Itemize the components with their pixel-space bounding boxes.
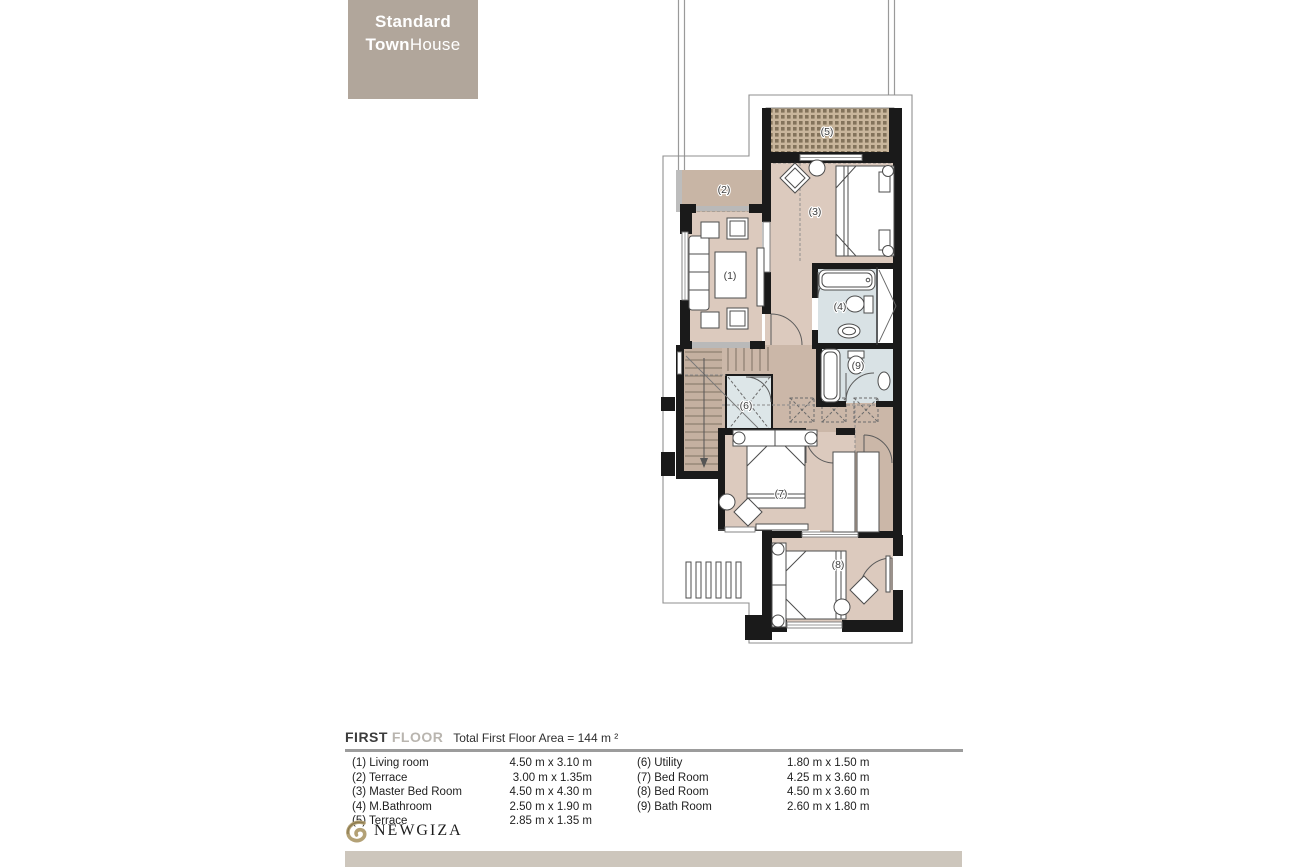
- legend-row: (9) Bath Room2.60 m x 1.80 m: [637, 800, 882, 815]
- room-label-3: (3): [809, 206, 822, 218]
- newgiza-logo-text: NEWGIZA: [374, 822, 463, 840]
- legend-floor-word1: FIRST: [345, 729, 388, 745]
- legend-divider: [345, 749, 963, 752]
- newgiza-logo-icon: [345, 819, 369, 843]
- room-name: (8) Bed Room: [637, 785, 787, 800]
- title-line2-light: House: [410, 35, 461, 54]
- room-dims: 2.60 m x 1.80 m: [787, 800, 882, 815]
- legend-row: (2) Terrace3.00 m x 1.35m: [352, 771, 592, 786]
- room-name: (7) Bed Room: [637, 771, 787, 786]
- room-name: (3) Master Bed Room: [352, 785, 507, 800]
- room-dims: 4.25 m x 3.60 m: [787, 771, 882, 786]
- pergola-slats: [686, 562, 741, 598]
- room-dims: 2.85 m x 1.35 m: [507, 814, 592, 829]
- room-dims: 4.50 m x 3.60 m: [787, 785, 882, 800]
- room-dims: 4.50 m x 3.10 m: [507, 756, 592, 771]
- room-name: (1) Living room: [352, 756, 507, 771]
- closet-7b: [857, 452, 879, 532]
- room-name: (2) Terrace: [352, 771, 507, 786]
- sofa: [689, 236, 709, 310]
- room-name: (6) Utility: [637, 756, 787, 771]
- floor-plan: (1) (2) (3) (4) (5) (6) (7) (8) (9): [630, 0, 930, 665]
- legend-row: (6) Utility1.80 m x 1.50 m: [637, 756, 882, 771]
- room-label-6: (6): [740, 400, 753, 412]
- room-dims: 4.50 m x 4.30 m: [507, 785, 592, 800]
- title-line1: Standard: [375, 12, 451, 31]
- legend-row: (4) M.Bathroom2.50 m x 1.90 m: [352, 800, 592, 815]
- toilet-4: [846, 296, 864, 312]
- legend-row: (8) Bed Room4.50 m x 3.60 m: [637, 785, 882, 800]
- room-label-2: (2): [718, 184, 731, 196]
- title-line2-bold: Town: [366, 35, 410, 54]
- bench-7: [756, 524, 808, 530]
- sink-9: [878, 372, 890, 390]
- legend-heading: FIRST FLOOR Total First Floor Area = 144…: [345, 729, 963, 745]
- developer-logo: NEWGIZA: [345, 819, 463, 843]
- legend-total-area: Total First Floor Area = 144 m ²: [453, 731, 618, 745]
- room-dims: 1.80 m x 1.50 m: [787, 756, 882, 771]
- legend-row: (7) Bed Room4.25 m x 3.60 m: [637, 771, 882, 786]
- side-table-7: [719, 494, 735, 510]
- legend-row: (1) Living room4.50 m x 3.10 m: [352, 756, 592, 771]
- wall-shelf-8: [886, 556, 890, 592]
- room-dims: 2.50 m x 1.90 m: [507, 800, 592, 815]
- tv-unit: [757, 248, 764, 306]
- room-label-1: (1): [724, 270, 737, 282]
- room-label-4: (4): [834, 301, 847, 313]
- hall-floor: [765, 267, 812, 347]
- room-name: (4) M.Bathroom: [352, 800, 507, 815]
- plan-type-title-box: Standard TownHouse: [348, 0, 478, 99]
- room-dims: 3.00 m x 1.35m: [507, 771, 592, 786]
- room-label-8: (8): [832, 559, 845, 571]
- bottom-accent-bar: [345, 851, 962, 867]
- side-table-master: [809, 160, 825, 176]
- room-label-5: (5): [821, 126, 834, 138]
- room-label-9: (9): [852, 360, 865, 372]
- legend-column-right: (6) Utility1.80 m x 1.50 m (7) Bed Room4…: [637, 756, 882, 829]
- room-name: (9) Bath Room: [637, 800, 787, 815]
- legend-row: (3) Master Bed Room4.50 m x 4.30 m: [352, 785, 592, 800]
- legend-floor-word2: FLOOR: [392, 729, 444, 745]
- floor-plan-svg: (1) (2) (3) (4) (5) (6) (7) (8) (9): [630, 0, 930, 665]
- legend: FIRST FLOOR Total First Floor Area = 144…: [345, 729, 963, 829]
- closet-7a: [833, 452, 855, 532]
- side-table-8: [834, 599, 850, 615]
- room-label-7: (7): [775, 488, 788, 500]
